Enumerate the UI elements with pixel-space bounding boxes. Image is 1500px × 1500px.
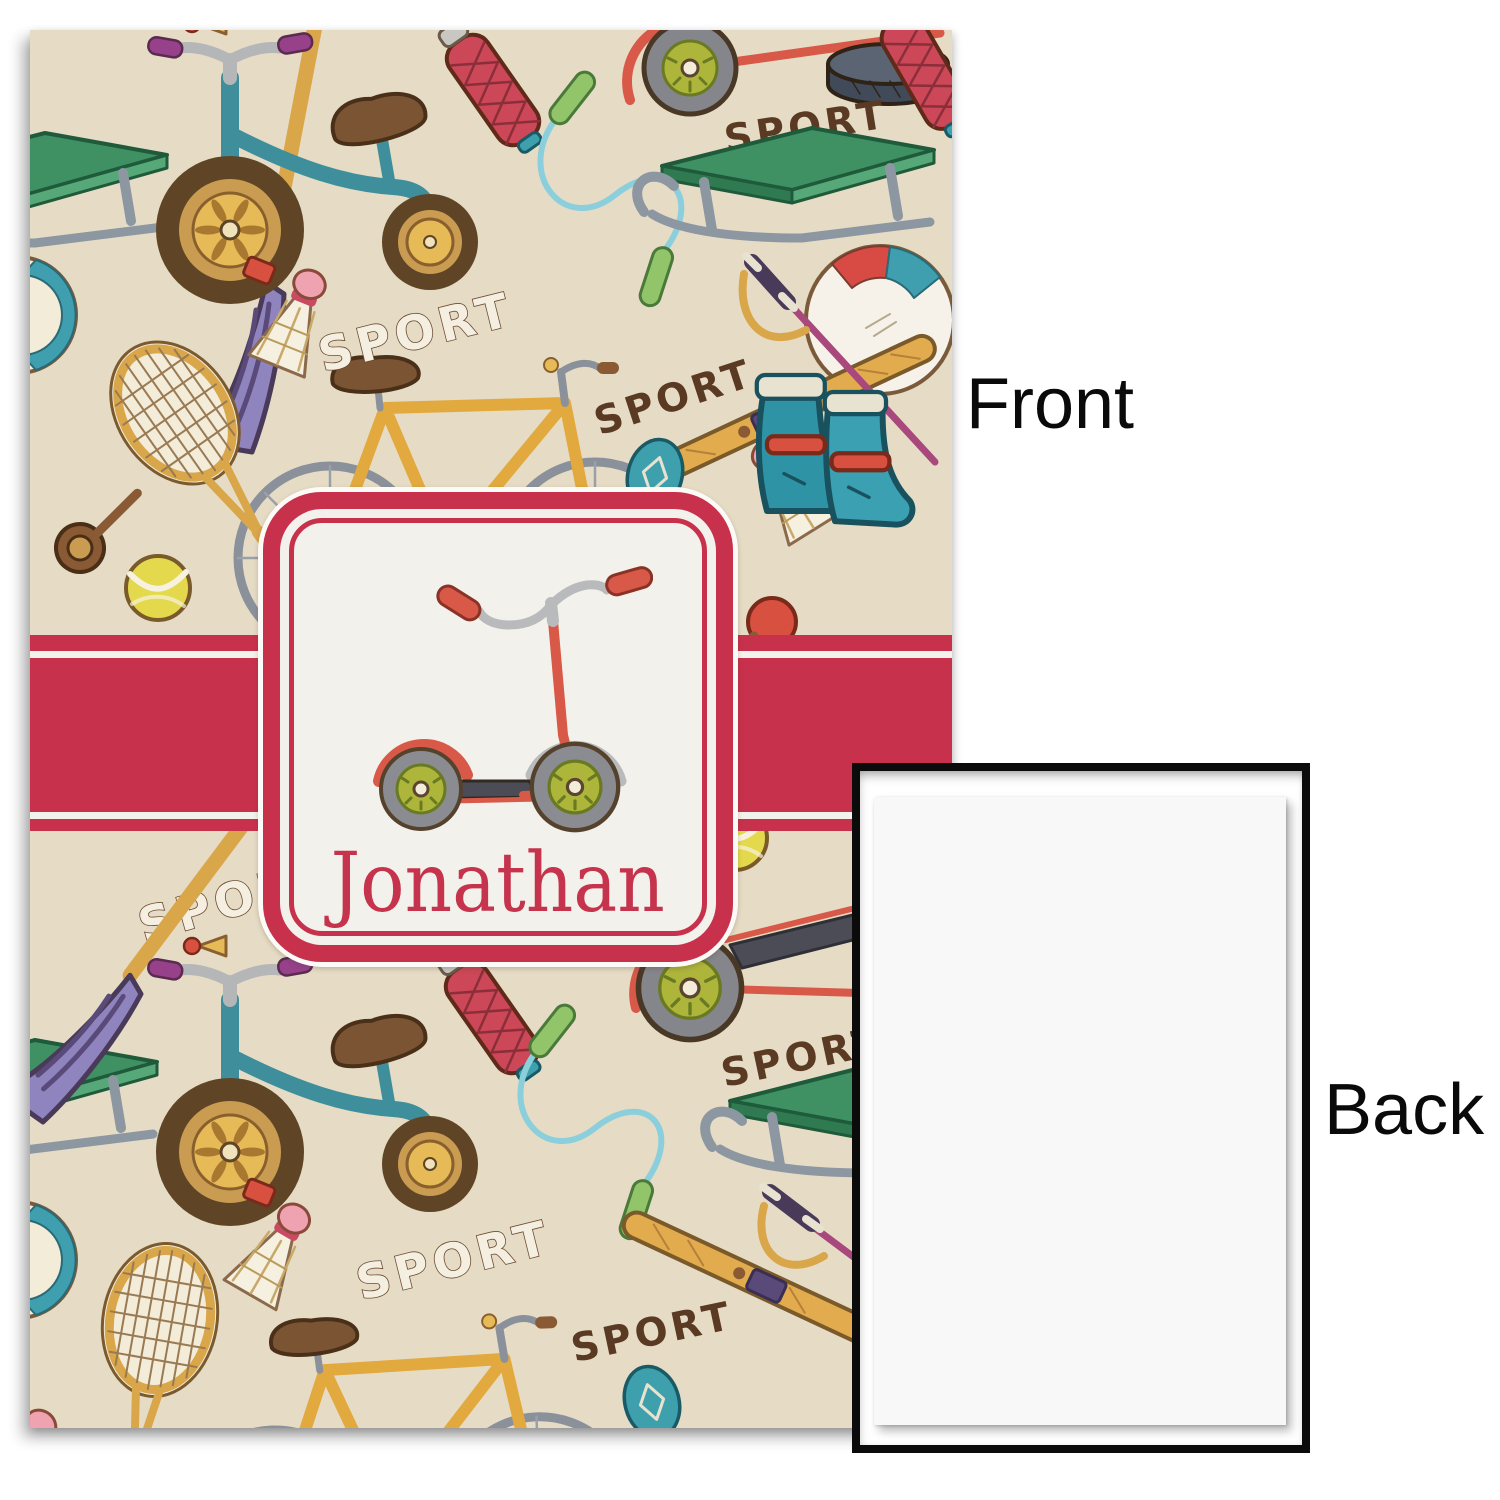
card-inner-gap: Jonathan xyxy=(280,509,716,945)
back-view-panel xyxy=(852,763,1310,1453)
back-label: Back xyxy=(1324,1074,1484,1146)
back-blank-sheet xyxy=(874,797,1286,1425)
personalized-name: Jonathan xyxy=(331,841,665,927)
front-label: Front xyxy=(966,368,1134,440)
card-red-border: Jonathan xyxy=(263,492,733,962)
tennis-ball-icon xyxy=(126,556,190,620)
front-poster: SPORT SPORT SPORT xyxy=(30,30,952,1428)
scooter-illustration xyxy=(343,559,653,841)
name-plate-card: Jonathan xyxy=(258,487,738,967)
product-preview-canvas: SPORT SPORT SPORT xyxy=(0,0,1500,1500)
card-inner-panel: Jonathan xyxy=(289,518,707,936)
